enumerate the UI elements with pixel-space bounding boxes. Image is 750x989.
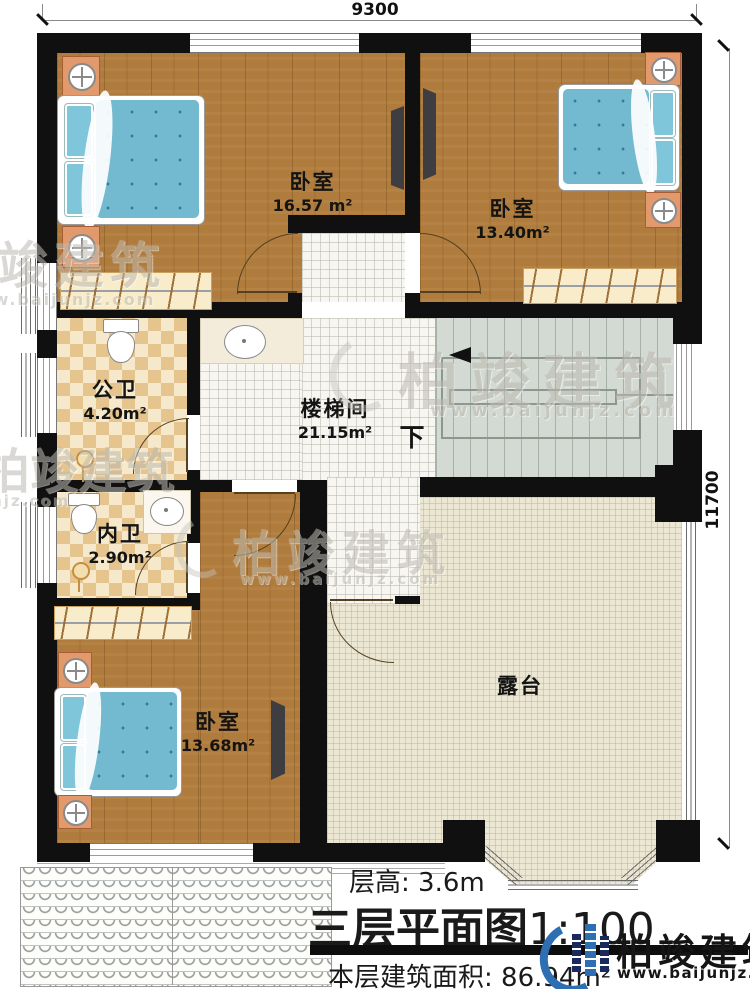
label-terrace: 露台 [475, 670, 565, 700]
nightstand [62, 226, 100, 268]
lamp-icon [68, 234, 96, 262]
wall-east-north [682, 33, 702, 310]
logo-building-bar [572, 932, 581, 972]
bed-bedroom2 [558, 84, 680, 191]
label-bedroom-bottom: 卧室 13.68m² [158, 706, 278, 755]
pillow [651, 91, 675, 137]
wall-bedroom2-south [405, 302, 682, 318]
wardrobe-bedroom3 [54, 606, 192, 640]
right-dimension-value: 11700 [703, 455, 723, 545]
brand-url: www.baijunjz.com [617, 964, 750, 982]
sill-lines-west-2 [21, 353, 37, 437]
stair-down-label: 下 [392, 418, 432, 454]
floor-plan-canvas: 9300 11700 [0, 0, 750, 989]
lamp-icon [63, 800, 89, 826]
door-leaf-private-bath [186, 541, 188, 593]
window-west-private-bath [37, 507, 57, 583]
top-dimension-value: 9300 [330, 0, 420, 20]
shower-stem [82, 466, 84, 482]
window-south-bedroom3 [90, 843, 253, 862]
wall-bedroom3-east [300, 480, 327, 843]
right-dimension-tick-top [717, 39, 730, 52]
lower-roof-seam [172, 867, 173, 985]
label-bedroom-top-left: 卧室 16.57 m² [250, 166, 375, 215]
door-leaf-bedroom2 [420, 291, 480, 293]
hall-corridor-north [302, 233, 405, 302]
wall-bedroom1-east-a [288, 215, 302, 233]
nightstand [58, 652, 92, 688]
label-private-bath: 内卫 2.90m² [78, 518, 162, 567]
room-name: 卧室 [158, 706, 278, 736]
wardrobe-bedroom1 [60, 272, 212, 310]
room-name: 卧室 [250, 166, 375, 196]
wall-corridor-north [302, 215, 407, 233]
lamp-icon [63, 658, 89, 684]
right-dimension-tick-bottom [717, 837, 730, 850]
lamp-icon [68, 63, 96, 91]
window-north-bedroom1 [190, 33, 359, 53]
logo-building-bar [585, 924, 596, 976]
door-leaf-bedroom1 [237, 291, 297, 293]
nightstand [62, 56, 100, 96]
wall-terrace-door-jamb [395, 596, 420, 604]
label-stair-hall: 楼梯间 21.15m² [285, 393, 385, 442]
room-area: 4.20m² [73, 404, 157, 423]
terrace-post-southeast [656, 820, 700, 862]
hall-south-leg [327, 477, 420, 604]
door-leaf-public-bath [186, 418, 188, 472]
tv-bedroom2 [423, 88, 436, 180]
bed-bedroom1 [57, 95, 205, 225]
right-dimension-line [729, 48, 730, 848]
lamp-icon [651, 198, 677, 224]
stair-handrail-extension [615, 394, 673, 396]
private-bath-drain [164, 508, 168, 512]
window-east-stair [676, 344, 692, 430]
terrace-railing-south [508, 877, 638, 890]
door-leaf-bedroom3 [234, 492, 295, 494]
brand-logo-icon [540, 912, 614, 986]
terrace-railing-east [686, 522, 700, 824]
shower-stem [78, 578, 80, 592]
terrace-post-southwest [443, 820, 485, 862]
room-name: 露台 [475, 670, 565, 700]
room-area: 21.15m² [285, 423, 385, 442]
wardrobe-bedroom2 [523, 268, 677, 304]
window-west-public-bath [37, 358, 57, 433]
room-area: 2.90m² [78, 548, 162, 567]
tv-bedroom1 [391, 106, 404, 190]
top-dimension-line [42, 20, 697, 21]
room-name: 卧室 [455, 193, 570, 223]
window-west-bedroom1 [37, 263, 57, 330]
nightstand [645, 192, 681, 228]
stair-direction-arrow [449, 347, 471, 363]
wall-bedroom-divider [405, 33, 420, 233]
label-bedroom-top-right: 卧室 13.40m² [455, 193, 570, 242]
window-north-bedroom2 [471, 33, 641, 53]
stair-handrail-inner [449, 389, 617, 405]
sill-lines-west-3 [21, 502, 37, 588]
nightstand [645, 52, 681, 86]
room-area: 13.40m² [455, 223, 570, 242]
room-name: 内卫 [78, 518, 162, 548]
door-leaf-terrace [330, 599, 393, 601]
room-name: 楼梯间 [285, 393, 385, 423]
label-public-bath: 公卫 4.20m² [73, 374, 157, 423]
room-area: 16.57 m² [250, 196, 375, 215]
hall-basin-drain [242, 339, 246, 343]
nightstand [58, 795, 92, 829]
wall-east-stair-cap-bottom [673, 430, 702, 470]
room-area: 13.68m² [158, 736, 278, 755]
lamp-icon [651, 57, 677, 83]
lower-roof-tiles [20, 867, 332, 987]
wall-terrace-north [420, 477, 673, 497]
wall-bedroom1-east-b [288, 293, 302, 302]
logo-building-bar [600, 936, 609, 972]
sill-lines-west-1 [21, 258, 37, 334]
wall-public-bath-east-a [187, 318, 200, 415]
room-name: 公卫 [73, 374, 157, 404]
floor-area-label: 本层建筑面积: [328, 963, 493, 989]
wall-bedroom3-north-a [200, 480, 232, 492]
shower-icon [76, 450, 94, 468]
